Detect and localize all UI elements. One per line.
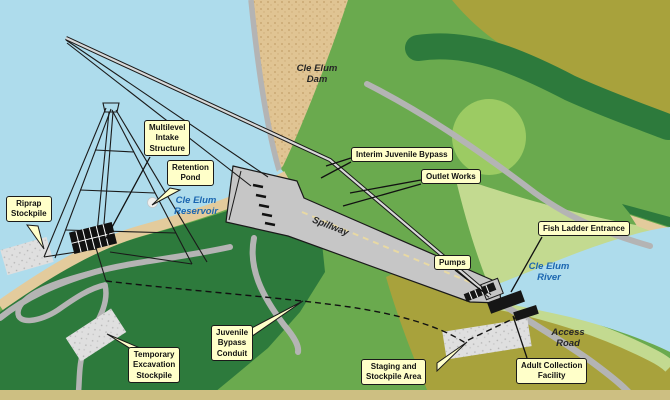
callout-fish-ladder-entrance: Fish Ladder Entrance bbox=[538, 221, 630, 236]
callout-staging-stockpile: Staging and Stockpile Area bbox=[361, 359, 426, 385]
callout-outlet-works: Outlet Works bbox=[421, 169, 481, 184]
place-label-reservoir: Cle Elum Reservoir bbox=[174, 196, 218, 218]
callout-juvenile-bypass-conduit: Juvenile Bypass Conduit bbox=[211, 325, 253, 361]
callout-temporary-excavation: Temporary Excavation Stockpile bbox=[128, 347, 180, 383]
place-label-river: Cle Elum River bbox=[529, 262, 570, 284]
callout-adult-collection: Adult Collection Facility bbox=[516, 358, 587, 384]
place-label-access-road: Access Road bbox=[551, 328, 584, 350]
meadow-patch bbox=[452, 99, 526, 175]
site-plan-map: Riprap Stockpile Multilevel Intake Struc… bbox=[0, 0, 670, 400]
callout-pumps: Pumps bbox=[434, 255, 471, 270]
callout-multilevel-intake: Multilevel Intake Structure bbox=[144, 120, 190, 156]
place-label-dam: Cle Elum Dam bbox=[297, 64, 338, 86]
callout-riprap-stockpile: Riprap Stockpile bbox=[6, 196, 52, 222]
callout-retention-pond: Retention Pond bbox=[167, 160, 214, 186]
callout-interim-juvenile-bypass: Interim Juvenile Bypass bbox=[351, 147, 453, 162]
bottom-terrain-strip bbox=[0, 390, 670, 400]
